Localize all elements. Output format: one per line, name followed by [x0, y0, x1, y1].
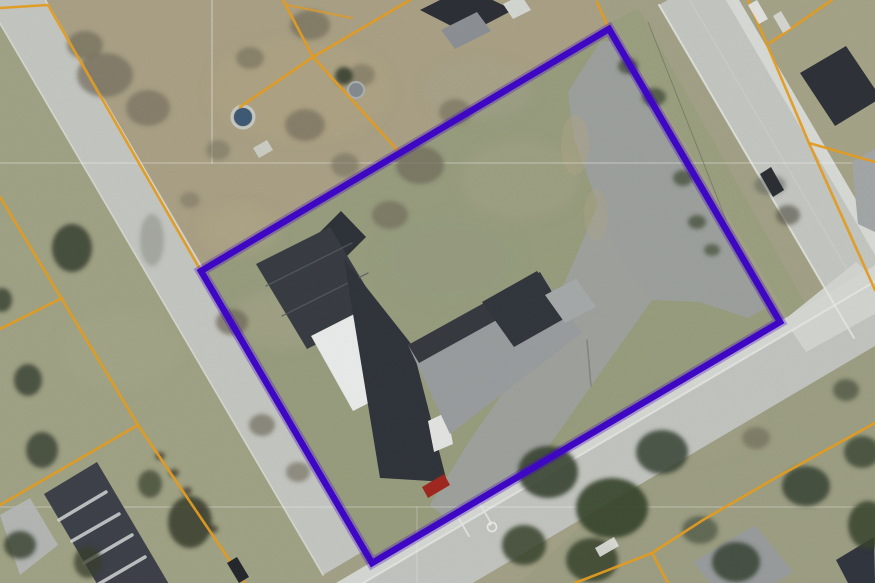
map-viewport [0, 0, 875, 583]
grain [0, 0, 875, 583]
aerial-map-canvas[interactable] [0, 0, 875, 583]
layer-noise-overlay [0, 0, 875, 583]
